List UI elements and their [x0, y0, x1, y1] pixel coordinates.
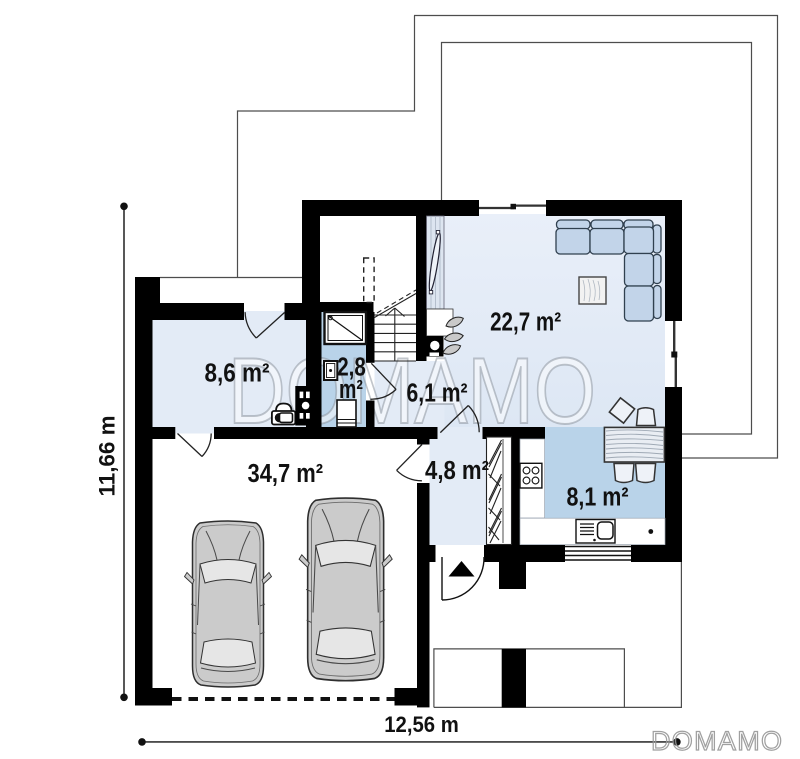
svg-text:6,1 m²: 6,1 m²: [407, 379, 468, 407]
svg-text:8,6 m²: 8,6 m²: [205, 360, 270, 388]
svg-text:8,1 m²: 8,1 m²: [567, 484, 629, 512]
svg-text:4,8 m²: 4,8 m²: [425, 457, 489, 485]
svg-text:22,7 m²: 22,7 m²: [490, 309, 561, 337]
svg-text:12,56 m: 12,56 m: [384, 712, 459, 737]
svg-text:11,66 m: 11,66 m: [95, 416, 120, 497]
svg-text:34,7 m²: 34,7 m²: [248, 460, 324, 488]
svg-text:m²: m²: [339, 376, 363, 404]
